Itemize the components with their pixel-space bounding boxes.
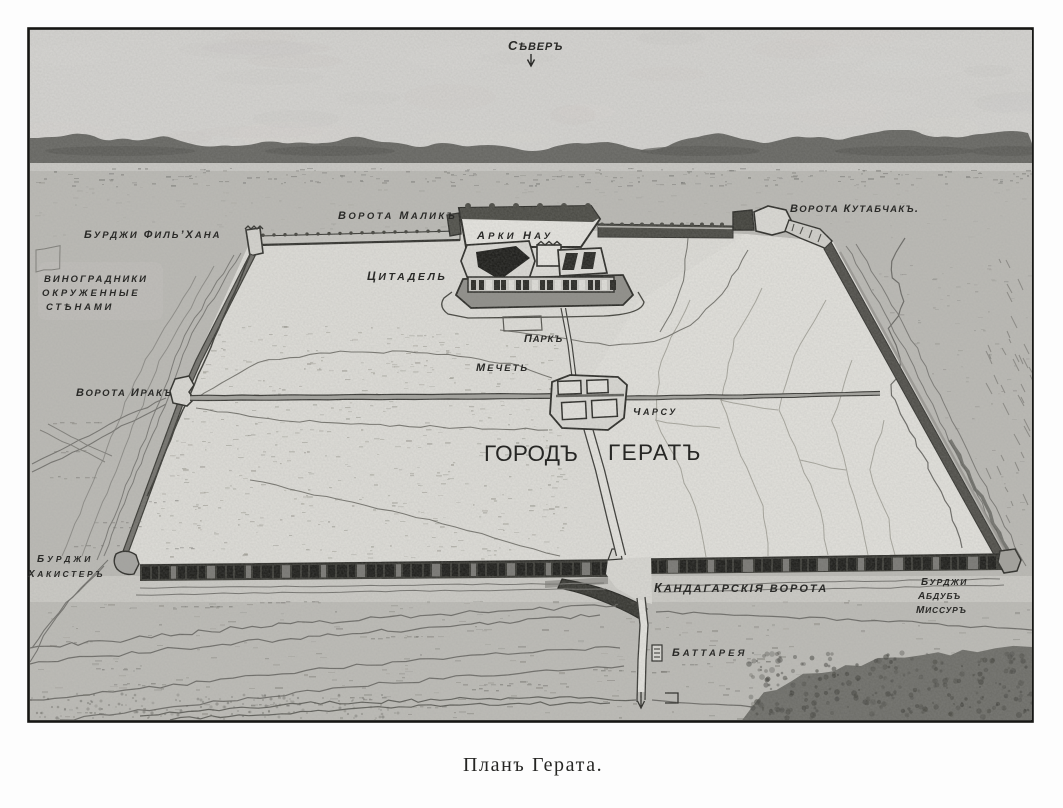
svg-text:АРКИ НАУ: АРКИ НАУ [476, 230, 553, 242]
svg-text:Планъ Герата.: Планъ Герата. [463, 754, 603, 776]
svg-text:БАТТАРЕЯ: БАТТАРЕЯ [672, 647, 747, 659]
svg-text:ХАКИСТЕРЪ: ХАКИСТЕРЪ [27, 569, 105, 580]
svg-text:ЧАРСУ: ЧАРСУ [633, 406, 678, 418]
svg-text:ВОРОТА КУТАБЧАКЪ.: ВОРОТА КУТАБЧАКЪ. [790, 203, 919, 215]
svg-text:МЕЧЕТЬ: МЕЧЕТЬ [476, 362, 529, 374]
svg-text:БУРДЖИ: БУРДЖИ [37, 554, 93, 565]
svg-text:ВИНОГРАДНИКИ: ВИНОГРАДНИКИ [44, 274, 148, 285]
svg-text:СТѢНАМИ: СТѢНАМИ [46, 302, 114, 313]
svg-text:ЦИТАДЕЛЬ: ЦИТАДЕЛЬ [367, 269, 447, 283]
svg-text:ПАРКЪ: ПАРКЪ [524, 333, 563, 345]
svg-text:ВОРОТА ИРАКЪ: ВОРОТА ИРАКЪ [76, 387, 173, 399]
svg-text:БУРДЖИ ФИЛЬ’ХАНА: БУРДЖИ ФИЛЬ’ХАНА [84, 229, 221, 241]
svg-text:СѢВЕРЪ: СѢВЕРЪ [508, 38, 563, 53]
svg-text:ОКРУЖЕННЫЕ: ОКРУЖЕННЫЕ [42, 288, 140, 299]
svg-text:МИССУРЪ: МИССУРЪ [916, 605, 967, 616]
svg-text:АБДУБЪ: АБДУБЪ [917, 591, 961, 602]
svg-text:ГЕРАТЪ: ГЕРАТЪ [608, 440, 702, 465]
svg-text:ВОРОТА МАЛИКЪ: ВОРОТА МАЛИКЪ [338, 210, 457, 222]
svg-text:КАНДАГАРСКІЯ ВОРОТА: КАНДАГАРСКІЯ ВОРОТА [654, 581, 828, 595]
svg-text:БУРДЖИ: БУРДЖИ [921, 577, 968, 588]
svg-text:ГОРОДЪ: ГОРОДЪ [484, 441, 578, 466]
